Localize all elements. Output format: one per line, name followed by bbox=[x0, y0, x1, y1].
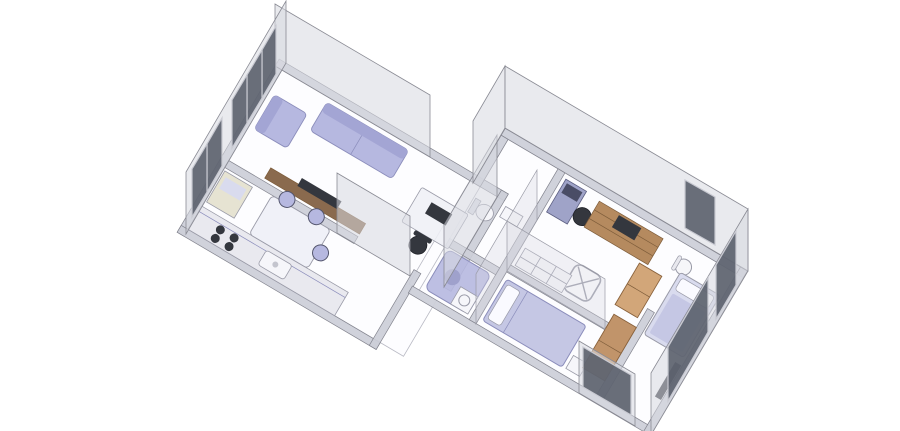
floorplan-svg bbox=[0, 0, 900, 431]
apartment-3d-render bbox=[0, 0, 900, 431]
